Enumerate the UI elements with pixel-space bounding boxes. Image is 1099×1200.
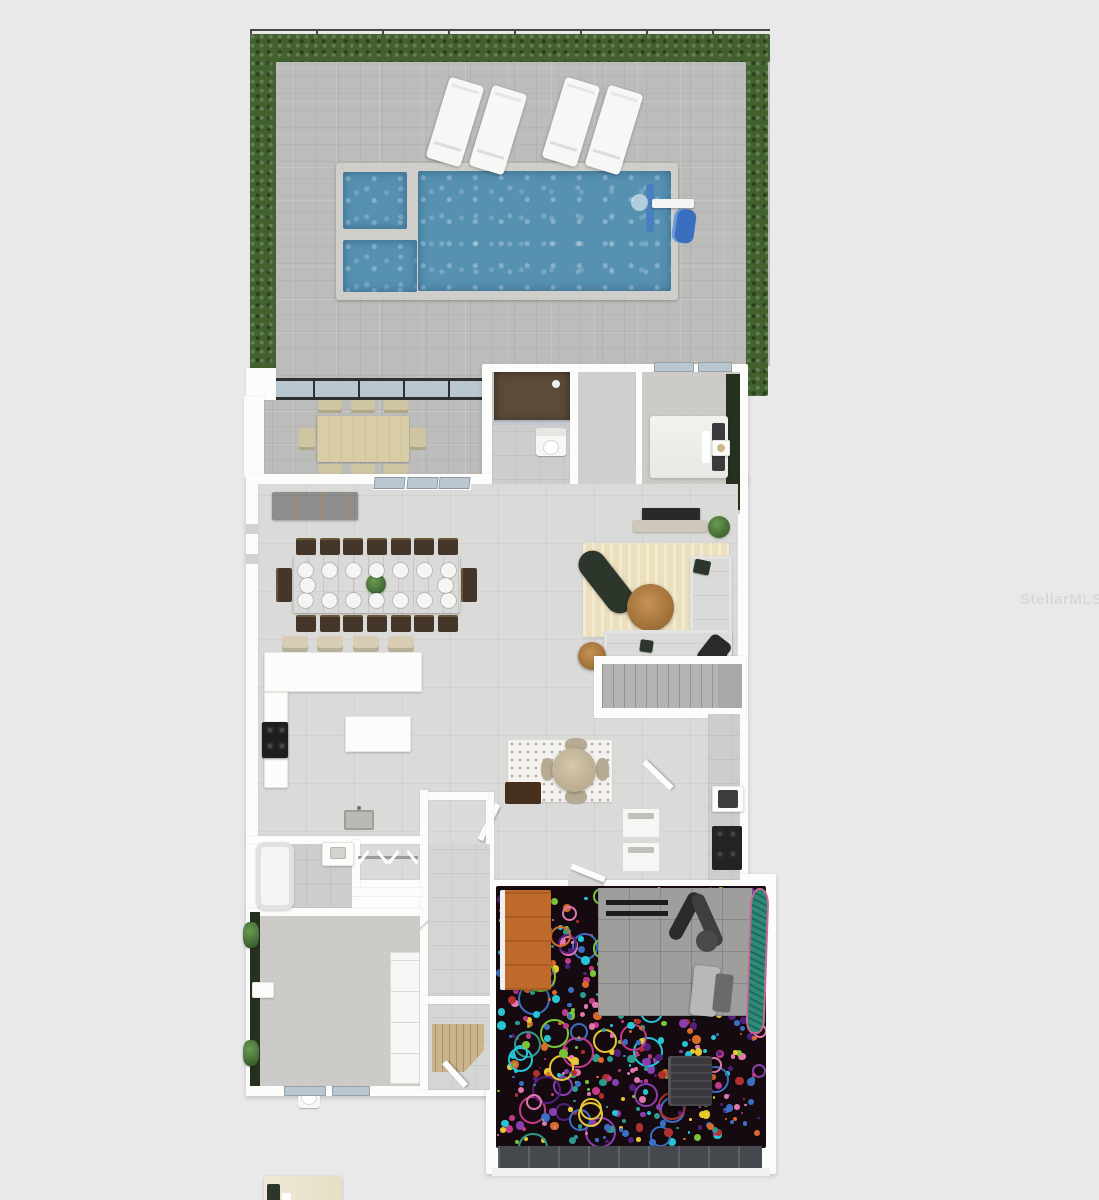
patio-chair-right (410, 428, 426, 450)
carpet-dot (551, 945, 554, 948)
carpet-dot (610, 1033, 615, 1038)
plate-right-end (438, 578, 453, 593)
wall-entry-top (420, 996, 490, 1004)
nook-chair-right (596, 758, 609, 780)
carpet-dot (568, 1014, 572, 1018)
carpet-dot (636, 1040, 640, 1044)
carpet-dot (647, 1111, 651, 1115)
spa-water (343, 172, 407, 229)
laundry-machine (622, 808, 660, 838)
carpet-dot (582, 981, 590, 989)
toilet-top (536, 428, 566, 456)
nightstand-bl (252, 982, 274, 998)
carpet-dot (754, 1130, 760, 1136)
bedroom-bl-window-2 (332, 1086, 370, 1096)
carpet-dot (682, 1041, 688, 1047)
carpet-dot (731, 1054, 735, 1058)
lanai-left-wall (244, 396, 264, 478)
shower-glass (494, 420, 570, 425)
carpet-dot (642, 1058, 650, 1066)
carpet-dot (599, 1093, 605, 1099)
carpet-dot (689, 1039, 691, 1041)
carpet-dot (583, 972, 586, 975)
stove-burner (266, 726, 274, 734)
carpet-dot (610, 1024, 613, 1027)
dining-plates-top (298, 562, 456, 578)
left-wall-window-1 (246, 524, 258, 534)
carpet-dot (595, 1138, 598, 1141)
carpet-dot (695, 1048, 703, 1056)
spa-divider-horizontal (337, 229, 417, 240)
bar-stool (388, 636, 414, 652)
carpet-dot (629, 1064, 631, 1066)
carpet-dot (512, 1076, 514, 1078)
wall-hall-left (420, 790, 428, 1090)
plate (393, 563, 408, 578)
carpet-dot (557, 1073, 561, 1077)
patio-chair (384, 400, 408, 413)
carpet-dot (689, 1118, 692, 1121)
carpet-dot (596, 1076, 598, 1078)
nook-cabinet (505, 782, 541, 804)
carpet-dot (636, 1137, 640, 1141)
carpet-dot (664, 1128, 673, 1137)
carpet-dot (578, 936, 583, 941)
carpet-dot (589, 1023, 596, 1030)
carpet-dot (621, 1020, 624, 1023)
carpet-dot (515, 1093, 518, 1096)
stove (262, 722, 288, 758)
carpet-dot (526, 1033, 532, 1039)
carpet-dot (687, 1028, 693, 1034)
dining-chair (391, 538, 411, 555)
carpet-dot (533, 1011, 540, 1018)
sideboard (272, 492, 358, 520)
carpet-dot (713, 1096, 716, 1099)
tv-console (633, 520, 707, 532)
carpet-dot (518, 1087, 524, 1093)
carpet-dot (725, 1118, 728, 1121)
plate (441, 563, 456, 578)
grill-burner (716, 850, 724, 858)
carpet-dot (522, 1127, 526, 1131)
grill-burner (716, 830, 724, 838)
orange-sofa (500, 890, 551, 990)
pool-water-extension (343, 240, 417, 292)
plate (441, 593, 456, 608)
patio-chairs-top (318, 400, 408, 414)
carpet-dot (576, 920, 579, 923)
carpet-dot (693, 1019, 696, 1022)
tv (642, 508, 700, 520)
plate (322, 563, 337, 578)
carpet-dot (639, 1047, 644, 1052)
carpet-dot (628, 1137, 634, 1143)
plate (346, 563, 361, 578)
carpet-dot (698, 1125, 702, 1129)
stove-burner (278, 726, 286, 734)
plate (417, 563, 432, 578)
bar-stool (353, 636, 379, 652)
carpet-dot (699, 1106, 701, 1108)
carpet-dot (508, 1047, 533, 1072)
nook-chair-bottom (565, 790, 587, 803)
carpet-dot (568, 987, 574, 993)
carpet-dot (580, 1012, 585, 1017)
grill-appliance (712, 826, 742, 870)
carpet-dot (711, 1035, 716, 1040)
glass-pane (406, 477, 438, 489)
vanity-bl-sink (330, 847, 346, 859)
carpet-dot (606, 1106, 608, 1108)
carpet-dot (740, 1033, 742, 1035)
carpet-dot (644, 1079, 648, 1083)
shower-head (552, 380, 560, 388)
carpet-dot (568, 1107, 572, 1111)
carpet-dot (544, 1058, 546, 1060)
dining-chairs-top (296, 538, 458, 554)
carpet-dot (558, 1022, 561, 1025)
bedroom-tr-window-1 (654, 362, 694, 372)
carpet-dot (571, 1070, 577, 1076)
carpet-dot (552, 995, 559, 1002)
carpet-dot (630, 1068, 635, 1073)
carpet-dot (724, 1094, 729, 1099)
bathtub (256, 842, 294, 910)
carpet-dot (656, 1104, 662, 1110)
carpet-dot (744, 1104, 747, 1107)
carpet-dot (567, 1003, 571, 1007)
patio-chair-left (299, 428, 315, 450)
left-wall-window-2 (246, 554, 258, 564)
carpet-dot (569, 1137, 576, 1144)
carpet-dot (552, 919, 555, 922)
carpet-dot (575, 1081, 581, 1087)
carpet-dot (497, 1134, 499, 1136)
carpet-dot (649, 1139, 655, 1145)
carpet-dot (623, 1055, 625, 1057)
barbell-rack (606, 892, 668, 916)
lanai-glass-lintel (268, 378, 492, 400)
carpet-dot (747, 1078, 754, 1085)
grill-burner (729, 850, 737, 858)
dining-chair (320, 615, 340, 632)
sofa-pillow-3 (639, 639, 654, 653)
carpet-dot (748, 1099, 755, 1106)
washer-dryer (622, 808, 660, 872)
patio-chair (351, 400, 375, 413)
kitchen-counter (264, 652, 422, 692)
carpet-dot (568, 948, 572, 952)
carpet-dot (741, 1112, 744, 1115)
carpet-dot (627, 1022, 634, 1029)
carpet-dot (635, 1019, 641, 1025)
dining-chair (343, 538, 363, 555)
plate (346, 593, 361, 608)
carpet-dot (679, 1050, 682, 1053)
carpet-dot (636, 1107, 640, 1111)
carpet-dot (497, 1090, 500, 1093)
carpet-dot (612, 1079, 619, 1086)
wall-laundry-top (428, 792, 488, 800)
carpet-dot (515, 1021, 519, 1025)
carpet-dot (578, 1102, 603, 1127)
carpet-dot (716, 1033, 719, 1036)
carpet-dot (703, 1049, 707, 1053)
utility-sink-basin (718, 790, 738, 808)
dining-chair-left-end (276, 568, 292, 602)
bed-bl-1 (264, 1176, 342, 1200)
carpet-dot (587, 1092, 591, 1096)
carpet-dot (541, 1043, 548, 1050)
dining-chair (343, 615, 363, 632)
plate (298, 563, 313, 578)
carpet-dot (604, 1124, 611, 1131)
lamp-tr (717, 444, 725, 452)
plate (298, 593, 313, 608)
pool-basketball-pole (646, 184, 654, 232)
carpet-dot (661, 1021, 666, 1026)
carpet-dot (618, 1069, 621, 1072)
carpet-dot (752, 1036, 756, 1040)
carpet-dot (542, 1119, 544, 1121)
carpet-dot (550, 926, 572, 948)
dining-chair (296, 615, 316, 632)
hedge-left (250, 34, 276, 390)
carpet-dot (551, 898, 558, 905)
carpet-dot (575, 1046, 578, 1049)
carpet-dot (573, 1100, 575, 1102)
garage-sill (492, 1168, 770, 1176)
dining-chair (367, 538, 387, 555)
carpet-dot (728, 1066, 733, 1071)
carpet-dot (539, 1067, 541, 1069)
patio-chair (318, 400, 342, 413)
dining-chair (391, 615, 411, 632)
hanger (364, 850, 382, 866)
carpet-dot (735, 1077, 743, 1085)
carpet-dot (554, 1126, 556, 1128)
carpet-dot (522, 1041, 530, 1049)
carpet-dot (519, 1081, 524, 1086)
dining-plates-bottom (298, 592, 456, 608)
carpet-dot (565, 964, 570, 969)
carpet-dot (634, 1083, 658, 1107)
dining-chair (438, 615, 458, 632)
patio-dining-table (317, 416, 409, 462)
dining-chair (320, 538, 340, 555)
carpet-dot (720, 1103, 722, 1105)
carpet-dot (584, 897, 587, 900)
stair-landing (718, 664, 742, 708)
hedge-top (250, 34, 770, 62)
stair-treads (602, 664, 718, 708)
carpet-dot (734, 1020, 740, 1026)
pool-splash (631, 194, 648, 211)
carpet-dot (552, 990, 557, 995)
glass-pane (439, 477, 471, 489)
carpet-dot (581, 1050, 585, 1054)
carpet-dot (627, 1055, 635, 1063)
carpet-dot (679, 1019, 688, 1028)
carpet-dot (658, 1071, 666, 1079)
shower-top (494, 372, 570, 422)
bar-stools (282, 636, 414, 652)
carpet-dot (730, 1120, 734, 1124)
carpet-dot (585, 1080, 589, 1084)
carpet-dot (640, 1112, 645, 1117)
gym-machine-seat (696, 930, 718, 952)
carpet-dot (743, 1121, 748, 1126)
sofa-pillow-1 (693, 558, 712, 575)
carpet-dot (614, 1049, 621, 1056)
carpet-dot (621, 1097, 625, 1101)
carpet-dot (644, 1067, 648, 1071)
carpet-dot (683, 1138, 685, 1140)
plate (417, 593, 432, 608)
carpet-dot (605, 1140, 609, 1144)
lounge-chairs (437, 80, 647, 176)
carpet-dot (498, 1008, 505, 1015)
dining-chair-right-end (461, 568, 477, 602)
plate (322, 593, 337, 608)
carpet-dot (607, 1076, 612, 1081)
coffee-table (627, 584, 674, 631)
carpet-dot (734, 1104, 740, 1110)
carpet-dot (542, 1121, 547, 1126)
carpet-dot (688, 1131, 691, 1134)
plant-bl-2 (243, 1040, 259, 1066)
pool-basketball-arm (652, 199, 694, 208)
game-table (668, 1056, 712, 1106)
pool-water-main (418, 171, 671, 291)
carpet-dot (559, 1049, 568, 1058)
nook-table (552, 748, 596, 792)
watermark: StellarMLS (1020, 591, 1099, 608)
carpet-dot (549, 1108, 557, 1116)
bar-stool (317, 636, 343, 652)
carpet-dot (572, 1086, 578, 1092)
plate (369, 563, 384, 578)
carpet-dot (580, 992, 586, 998)
dining-chair (438, 538, 458, 555)
glass-pane (373, 477, 405, 489)
dining-chair (296, 538, 316, 555)
kitchen-sink (344, 810, 374, 830)
carpet-dot (757, 1117, 760, 1120)
carpet-dot (592, 1087, 600, 1095)
carpet-dot (509, 1035, 511, 1037)
carpet-dot (500, 1127, 506, 1133)
plant-living (708, 516, 730, 538)
carpet-dot (587, 1088, 590, 1091)
carpet-dot (612, 1110, 618, 1116)
dining-chair (367, 615, 387, 632)
stove-burner (266, 742, 274, 750)
grill-burner (729, 830, 737, 838)
carpet-dot (692, 1035, 701, 1044)
carpet-dot (571, 1057, 579, 1065)
carpet-dot (627, 1072, 630, 1075)
carpet-dot (733, 1117, 737, 1121)
carpet-dot (509, 1115, 515, 1121)
floor-plan-render: StellarMLS (0, 0, 1099, 1200)
carpet-dot (632, 1095, 635, 1098)
dresser-bl (390, 952, 420, 1084)
carpet-dot (654, 1074, 657, 1077)
plant-bl-1 (243, 922, 259, 948)
carpet-dot (565, 958, 571, 964)
plate (393, 593, 408, 608)
plate-left-end (300, 578, 315, 593)
carpet-dot (497, 1021, 506, 1030)
carpet-dot (598, 1057, 604, 1063)
bar-stool (282, 636, 308, 652)
carpet-dot (527, 1025, 530, 1028)
carpet-dot (585, 1132, 588, 1135)
carpet-dot (607, 1056, 613, 1062)
dining-chairs-bottom (296, 615, 458, 631)
carpet-dot (599, 1079, 607, 1087)
hanger (394, 850, 412, 866)
closet-hangers (364, 850, 414, 876)
hedge-right (746, 34, 768, 396)
carpet-dot (584, 1004, 588, 1008)
bedroom-bl-window-1 (284, 1086, 326, 1096)
kitchen-island (345, 716, 411, 752)
dining-chair (414, 615, 434, 632)
sliding-glass-door (373, 476, 471, 490)
carpet-dot (548, 998, 551, 1001)
carpet-dot (694, 1134, 701, 1141)
carpet-dot (676, 1127, 679, 1130)
carpet-dot (590, 970, 596, 976)
carpet-dot (655, 1054, 662, 1061)
carpet-dot (629, 1084, 636, 1091)
laundry-machine (622, 842, 660, 872)
carpet-dot (562, 906, 577, 921)
carpet-dot (636, 1123, 643, 1130)
carpet-dot (622, 1119, 626, 1123)
stove-burner (278, 742, 286, 750)
carpet-dot (639, 1026, 642, 1029)
wall-closet-bottom (352, 888, 422, 896)
carpet-dot (743, 1098, 745, 1100)
carpet-dot (740, 1026, 745, 1031)
carpet-dot (643, 1089, 648, 1094)
bedroom-tr-window-2 (698, 362, 732, 372)
dining-chair (414, 538, 434, 555)
carpet-dot (581, 956, 589, 964)
carpet-dot (619, 1128, 623, 1132)
plate (369, 593, 384, 608)
